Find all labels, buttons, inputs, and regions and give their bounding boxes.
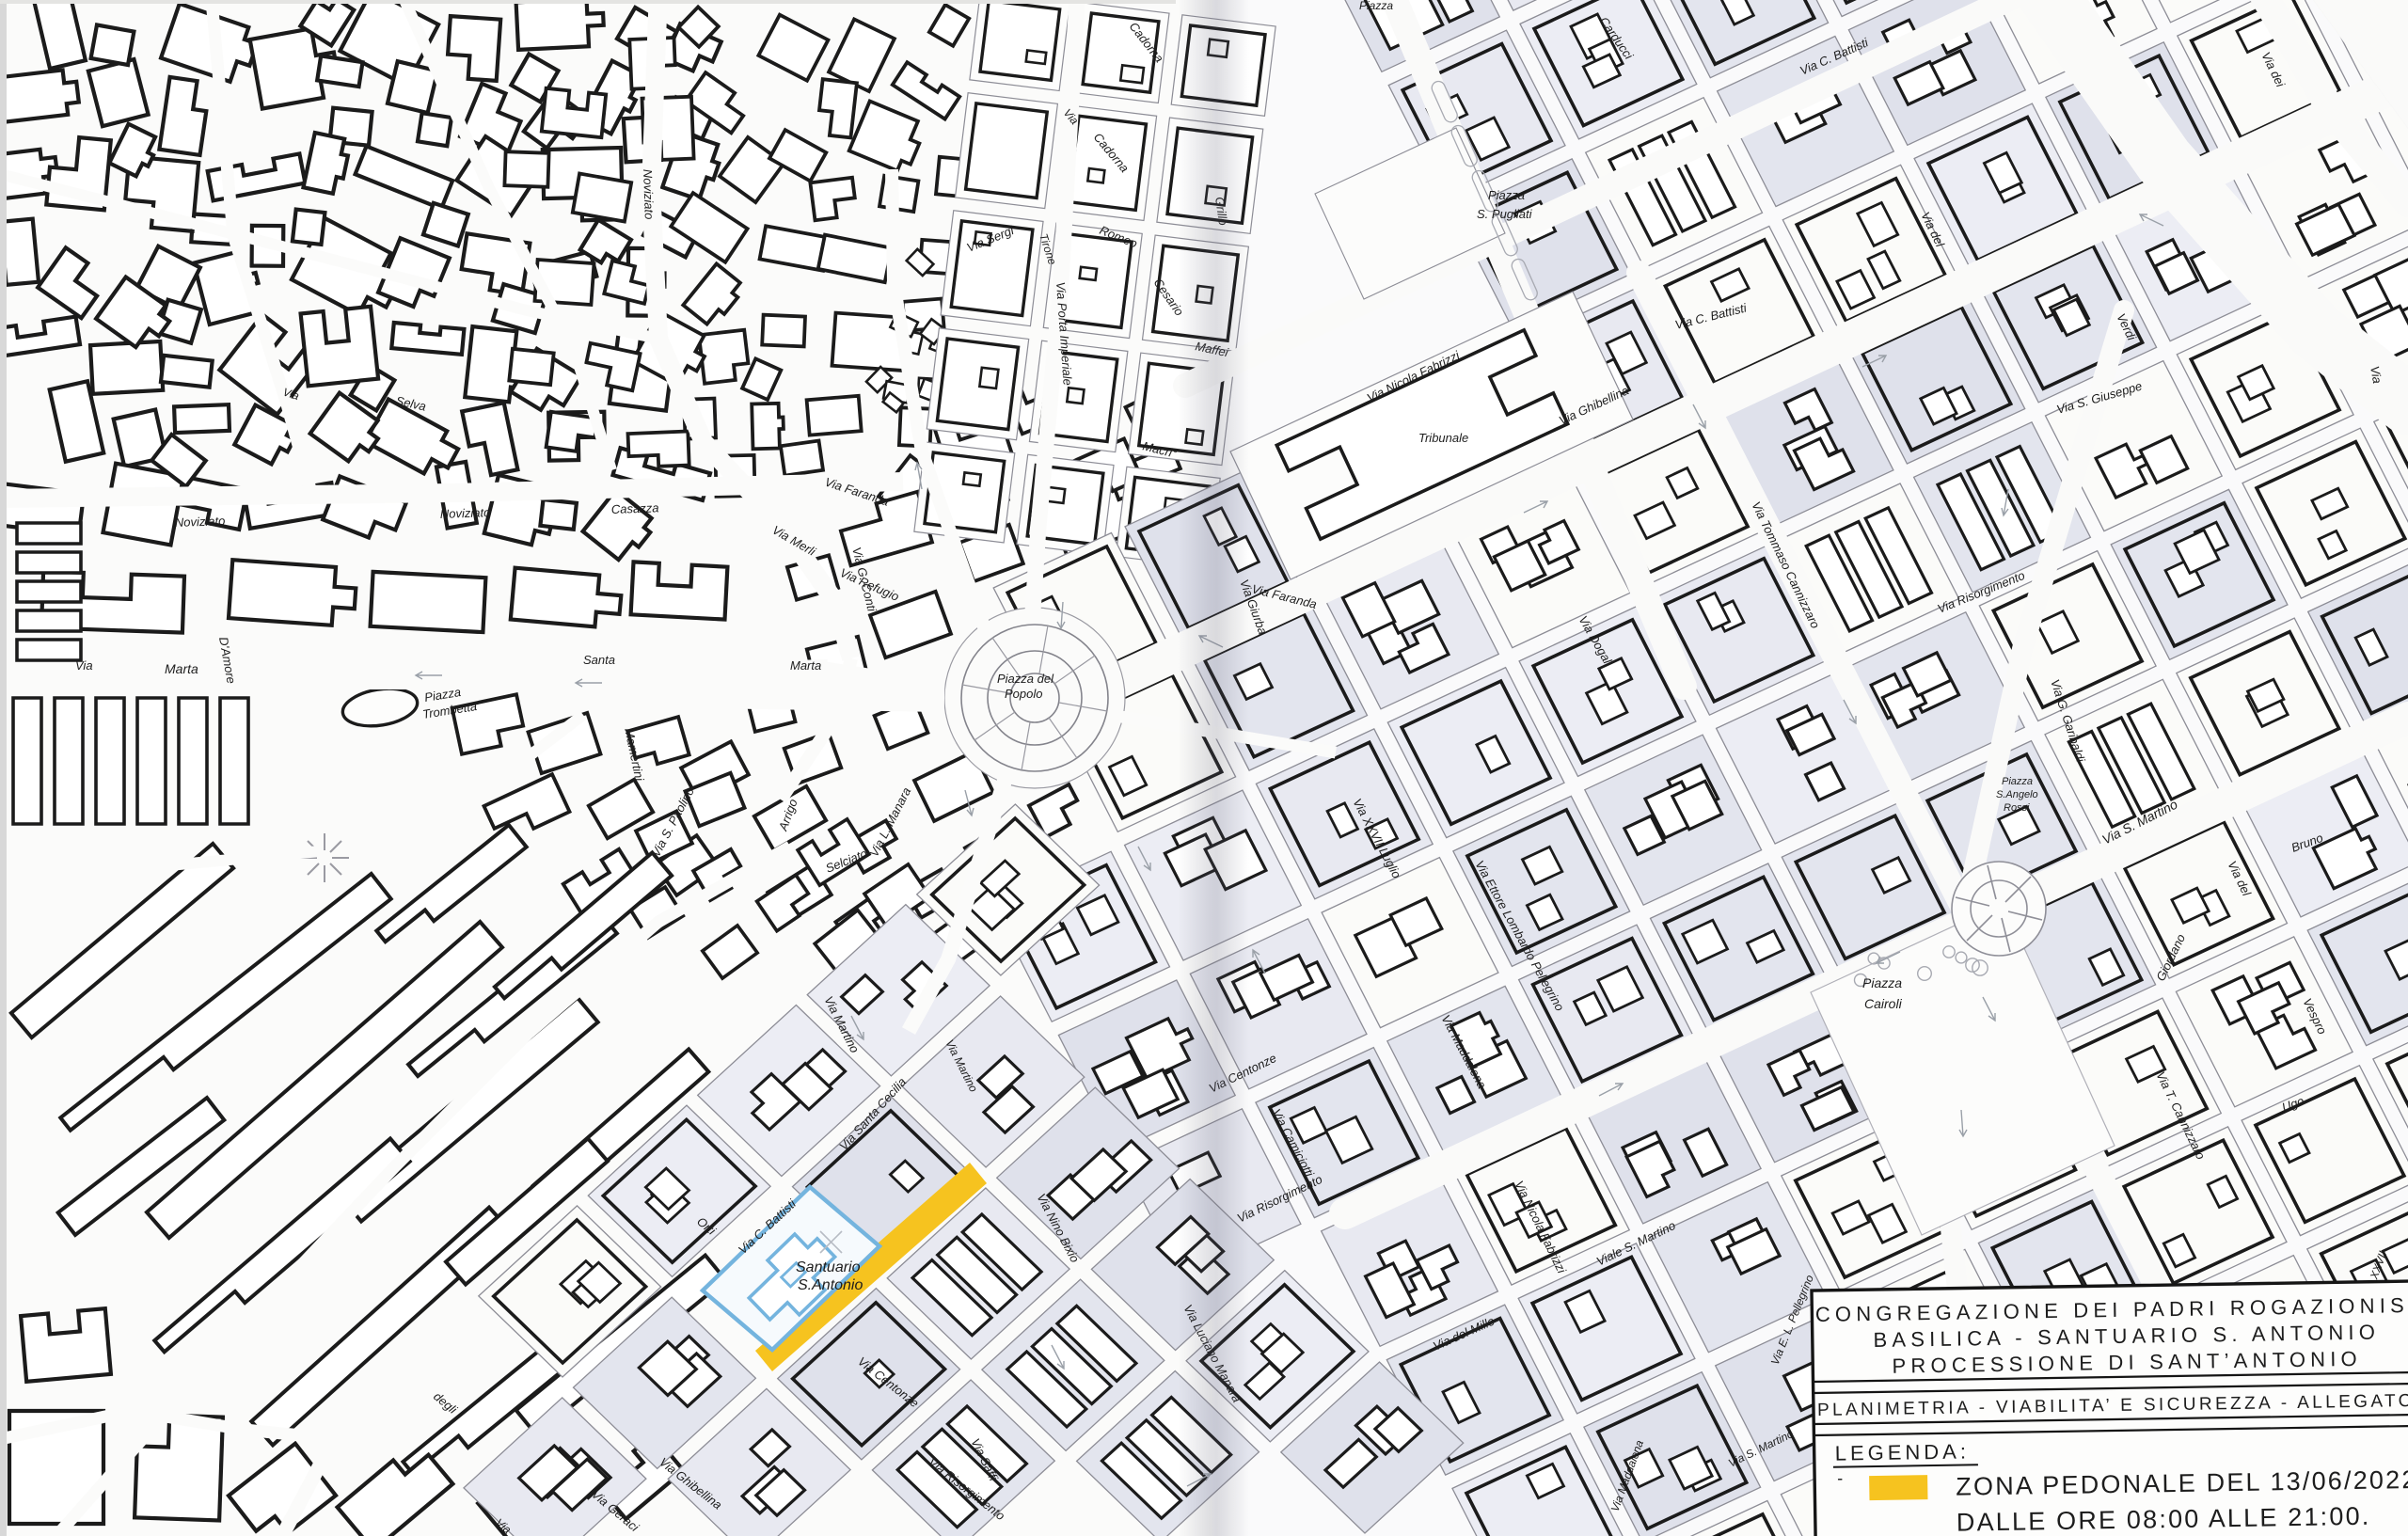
svg-text:Marta: Marta: [165, 661, 198, 676]
svg-text:Marta: Marta: [790, 658, 821, 673]
svg-text:Santuario: Santuario: [796, 1259, 861, 1275]
svg-text:Rossi: Rossi: [2004, 802, 2030, 814]
svg-text:Popolo: Popolo: [1005, 687, 1042, 701]
svg-text:DALLE ORE 08:00 ALLE 21:00.: DALLE ORE 08:00 ALLE 21:00.: [1956, 1502, 2371, 1536]
svg-text:Via: Via: [2368, 365, 2384, 385]
svg-text:Piazza del: Piazza del: [997, 672, 1054, 686]
svg-text:S. Pugliati: S. Pugliati: [1477, 207, 1533, 221]
svg-text:Piazza: Piazza: [1488, 188, 1525, 202]
svg-text:S.Angelo: S.Angelo: [1996, 789, 2038, 800]
svg-text:Piazza: Piazza: [1862, 975, 1902, 990]
svg-text:Noviziato: Noviziato: [641, 169, 657, 220]
svg-text:Piazza: Piazza: [2002, 776, 2033, 787]
svg-text:Cairoli: Cairoli: [1864, 996, 1903, 1011]
svg-text:Tribunale: Tribunale: [1418, 431, 1468, 445]
svg-text:Casazza: Casazza: [611, 500, 659, 516]
svg-text:LEGENDA:: LEGENDA:: [1835, 1439, 1971, 1465]
svg-text:Noviziato: Noviziato: [440, 505, 491, 521]
svg-text:Noviziato: Noviziato: [175, 514, 226, 530]
svg-text:S.Antonio: S.Antonio: [798, 1277, 863, 1293]
svg-text:-: -: [1837, 1469, 1843, 1488]
svg-text:Via: Via: [75, 658, 93, 673]
svg-text:Piazza: Piazza: [1359, 0, 1393, 12]
svg-text:Santa: Santa: [583, 653, 615, 667]
